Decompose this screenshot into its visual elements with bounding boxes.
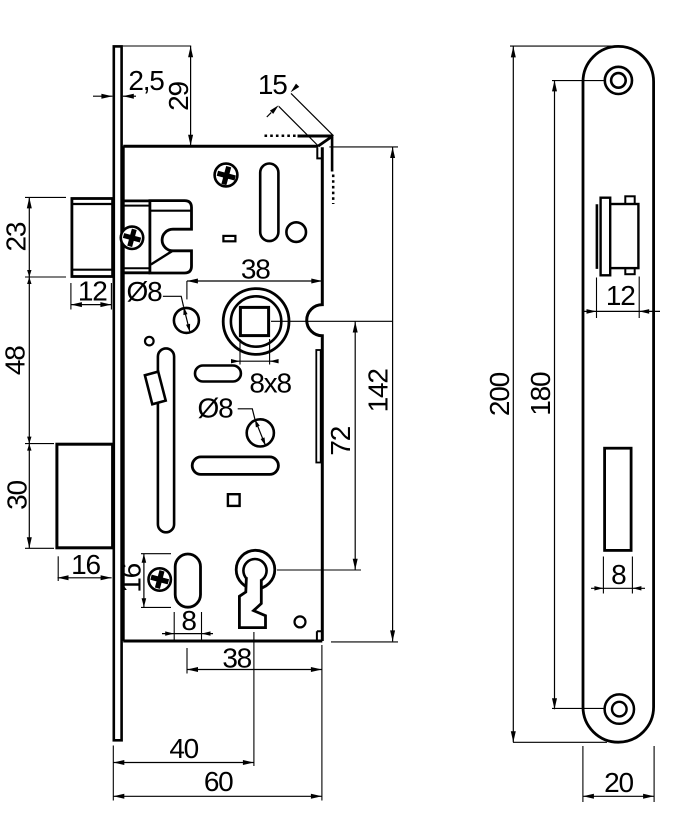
svg-text:8x8: 8x8 — [249, 368, 291, 399]
svg-text:29: 29 — [163, 82, 194, 111]
svg-text:20: 20 — [604, 767, 633, 798]
svg-text:16: 16 — [71, 549, 100, 580]
svg-text:8: 8 — [611, 559, 626, 590]
svg-text:30: 30 — [2, 481, 33, 510]
svg-text:72: 72 — [325, 426, 356, 455]
svg-text:60: 60 — [204, 766, 233, 797]
svg-text:8: 8 — [181, 605, 196, 636]
svg-text:2,5: 2,5 — [128, 65, 164, 96]
svg-text:48: 48 — [0, 346, 31, 375]
svg-text:38: 38 — [222, 643, 251, 674]
svg-text:38: 38 — [241, 254, 270, 285]
svg-text:200: 200 — [484, 372, 515, 416]
svg-text:15: 15 — [258, 69, 287, 100]
svg-text:180: 180 — [525, 372, 556, 416]
svg-text:Ø8: Ø8 — [198, 393, 234, 424]
svg-text:40: 40 — [169, 733, 198, 764]
svg-text:12: 12 — [606, 280, 635, 311]
svg-text:23: 23 — [0, 222, 31, 251]
svg-text:16: 16 — [116, 563, 147, 592]
svg-text:12: 12 — [78, 276, 107, 307]
svg-text:Ø8: Ø8 — [127, 276, 163, 307]
svg-text:142: 142 — [363, 369, 394, 413]
